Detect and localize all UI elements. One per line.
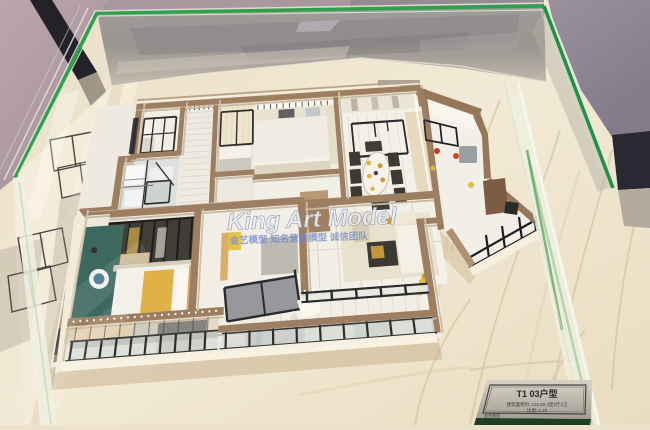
svg-text:比例: 1:25: 比例: 1:25 bbox=[527, 407, 548, 414]
svg-text:建筑面积约: 122.50 3室2厅2卫: 建筑面积约: 122.50 3室2厅2卫 bbox=[506, 401, 568, 408]
svg-text:金艺模型: 金艺模型 bbox=[484, 412, 500, 418]
svg-text:T1 03户型: T1 03户型 bbox=[516, 388, 557, 399]
